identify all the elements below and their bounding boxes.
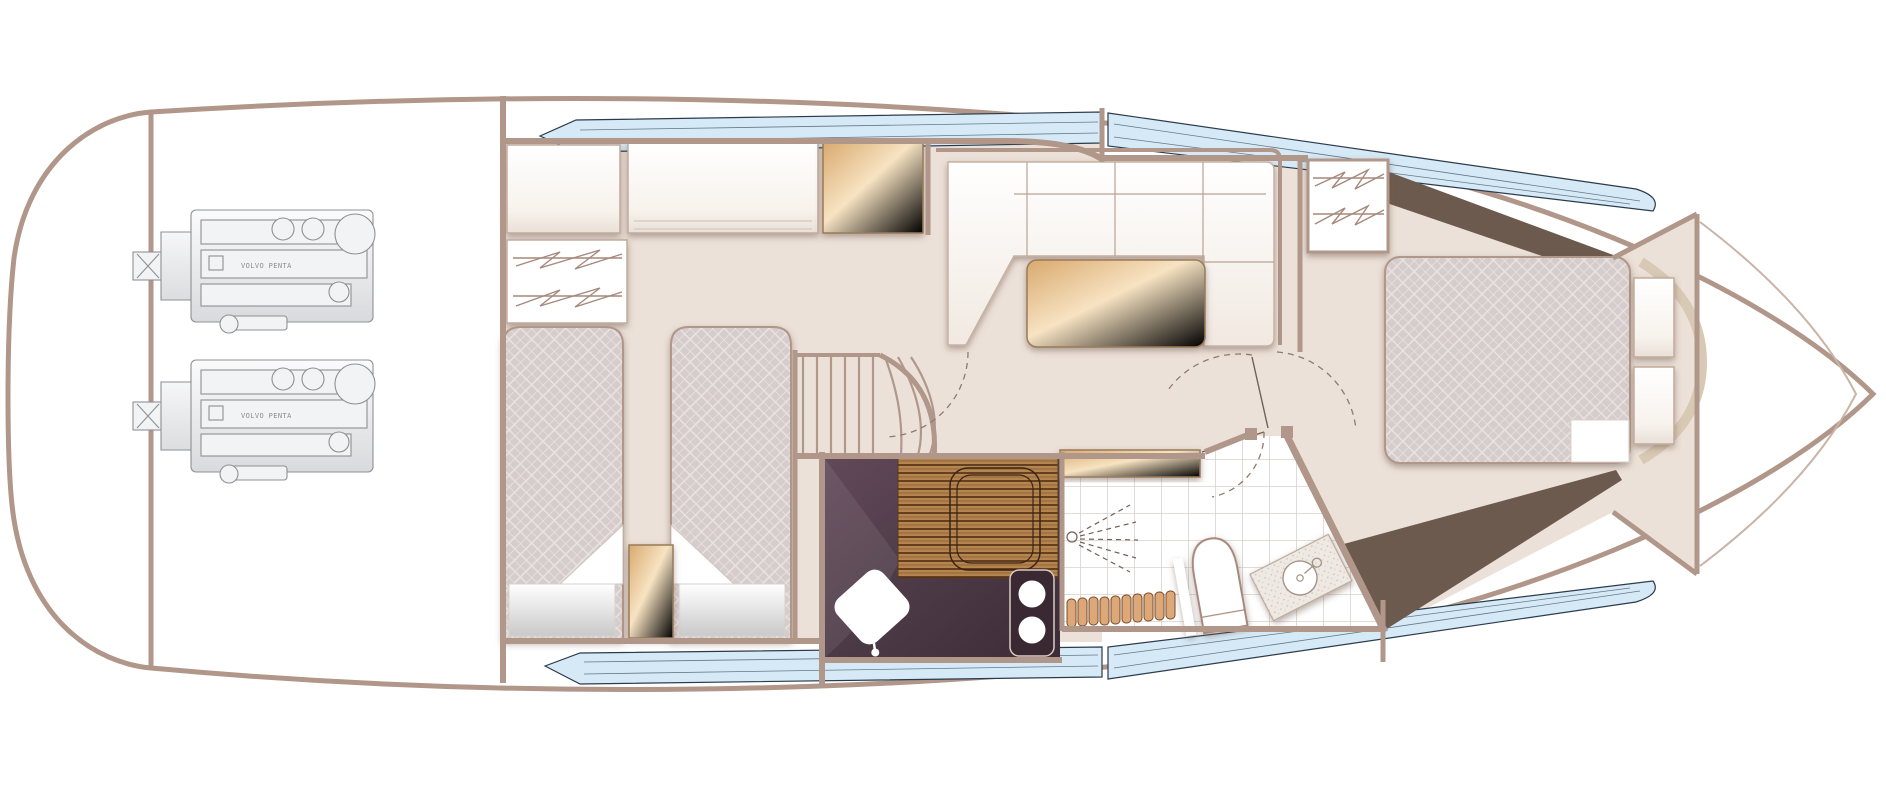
floor-plan-svg: VOLVO PENTA VOLVO PENTA: [0, 0, 1886, 798]
galley-wood-floor: [898, 458, 1058, 578]
bedside-step: [1634, 367, 1674, 444]
overhead-locker: [628, 142, 818, 233]
pillow: [509, 584, 615, 636]
bed-corner-sheet: [1571, 420, 1629, 462]
dinette-table: [1027, 260, 1205, 347]
cabinets: [628, 142, 923, 233]
galley-hob: [1010, 570, 1054, 656]
engine-label: VOLVO PENTA: [241, 262, 292, 270]
bedside-table: [629, 545, 673, 638]
engine-label: VOLVO PENTA: [241, 412, 292, 420]
galley: [822, 455, 1060, 660]
gold-cabinet: [823, 142, 923, 233]
pillow: [679, 584, 785, 636]
wardrobe-aft: [507, 240, 627, 323]
wardrobe-forward: [1308, 160, 1388, 252]
bedside-step: [1634, 278, 1674, 357]
yacht-floor-plan: VOLVO PENTA VOLVO PENTA: [0, 0, 1886, 798]
bedside-locker: [507, 145, 620, 233]
